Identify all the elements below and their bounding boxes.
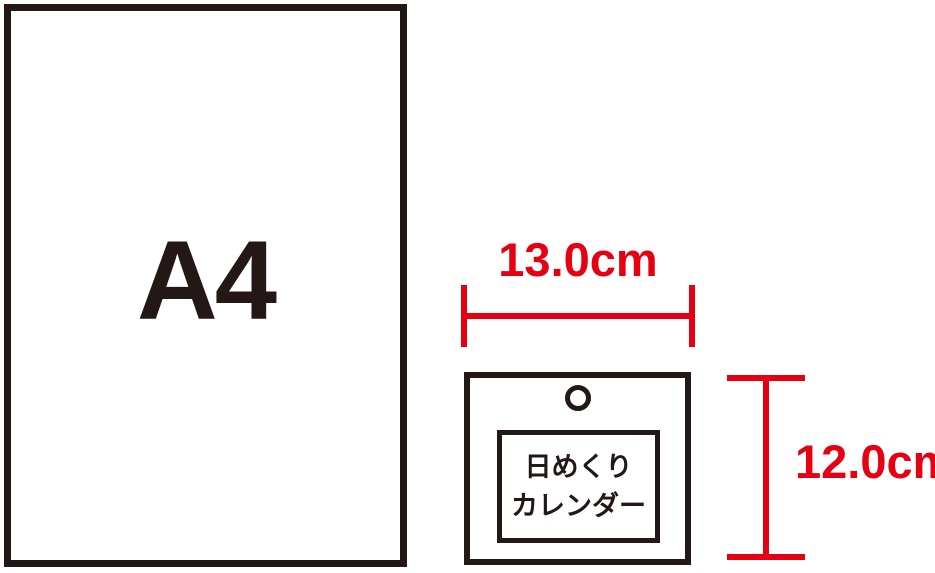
dimension-bar	[763, 375, 769, 560]
calendar-title-line1: 日めくり	[525, 454, 633, 481]
size-comparison-diagram: A4 13.0cm 日めくり カレンダー 12.0cm	[0, 0, 935, 573]
hanging-hole-icon	[565, 385, 591, 411]
height-dimension-label: 12.0cm	[795, 438, 935, 485]
width-dimension-label: 13.0cm	[461, 236, 695, 283]
a4-paper-outline: A4	[4, 4, 407, 567]
height-dimension-line	[727, 375, 805, 560]
dimension-bottom-cap	[727, 554, 805, 560]
dimension-right-cap	[689, 285, 695, 347]
dimension-bar	[461, 313, 695, 319]
calendar-title-box: 日めくり カレンダー	[497, 430, 660, 543]
calendar-outline: 日めくり カレンダー	[464, 372, 691, 565]
a4-label: A4	[137, 225, 274, 347]
calendar-title-line2: カレンダー	[511, 493, 646, 520]
width-dimension-line	[461, 285, 695, 347]
